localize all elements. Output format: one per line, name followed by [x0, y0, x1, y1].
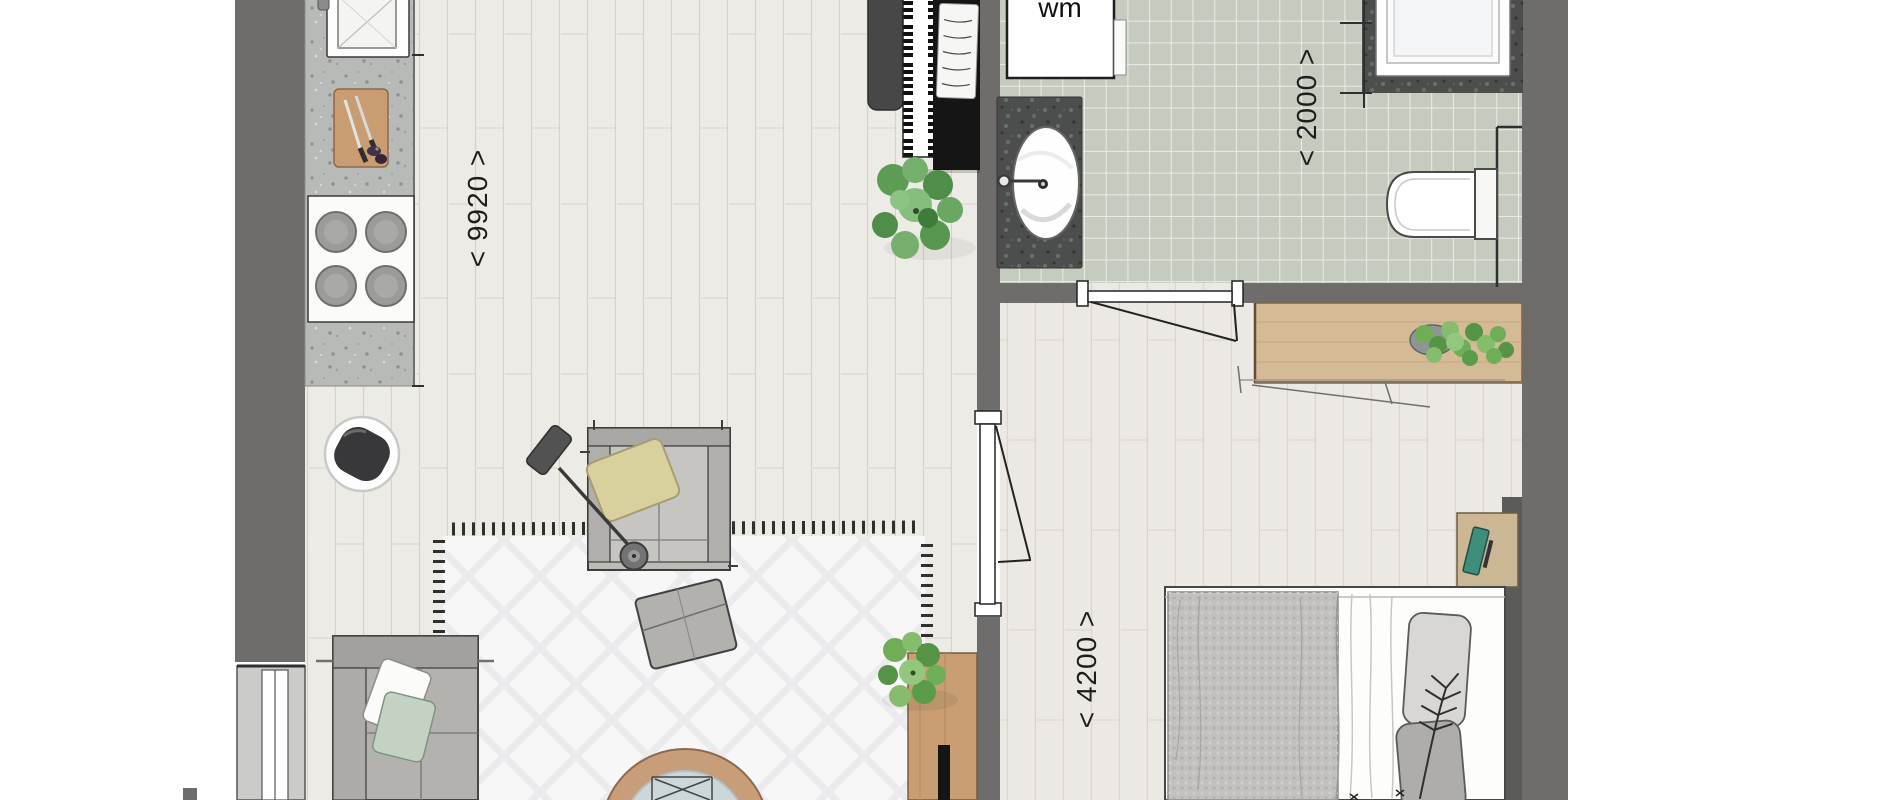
piano-bench [868, 0, 903, 110]
door-jamb [975, 603, 1001, 616]
left-wall [235, 0, 305, 662]
bathroom-dimension-label: < 2000 > [1291, 48, 1322, 167]
appliance-edge [1114, 20, 1126, 75]
floor-plan-drawing: wm [0, 0, 1880, 800]
center-wall-lower [977, 617, 1000, 800]
waste-bin [325, 417, 399, 491]
door-leaf [980, 424, 995, 604]
living-dimension-label: < 9920 > [462, 149, 493, 268]
corner-wall-stub [183, 788, 197, 800]
cooktop [308, 196, 414, 322]
kitchen-sink [318, 0, 409, 57]
toilet-bowl [1387, 172, 1475, 237]
bathroom-vanity-sink [997, 97, 1082, 268]
door-jamb [1232, 281, 1243, 306]
double-bed [1165, 587, 1505, 800]
armchair [580, 420, 738, 570]
door-leaf [1088, 291, 1232, 302]
bedroom-dimension-label: < 4200 > [1071, 610, 1102, 729]
cutting-board [334, 89, 388, 167]
sofa [316, 636, 494, 800]
piano-keys [903, 0, 935, 157]
bed-pillow-light [1402, 612, 1472, 728]
door-jamb [1077, 281, 1088, 306]
washing-machine: wm [1007, 0, 1126, 78]
bathroom-south-wall-right [1243, 283, 1522, 303]
bathroom-south-wall-left [977, 283, 1077, 303]
right-wall [1522, 0, 1568, 800]
bed-pillow-dark [1395, 719, 1467, 800]
floor-plan-canvas: wm [0, 0, 1880, 800]
toilet-tank [1475, 169, 1497, 239]
door-jamb [975, 411, 1001, 424]
shower [1340, 0, 1523, 108]
kitchen-counter [305, 0, 414, 386]
window [237, 666, 305, 800]
tv [938, 745, 950, 800]
sink-faucet [318, 0, 329, 10]
washer-label: wm [1037, 0, 1082, 23]
sheet-music [936, 3, 978, 98]
nightstand [1457, 513, 1518, 587]
